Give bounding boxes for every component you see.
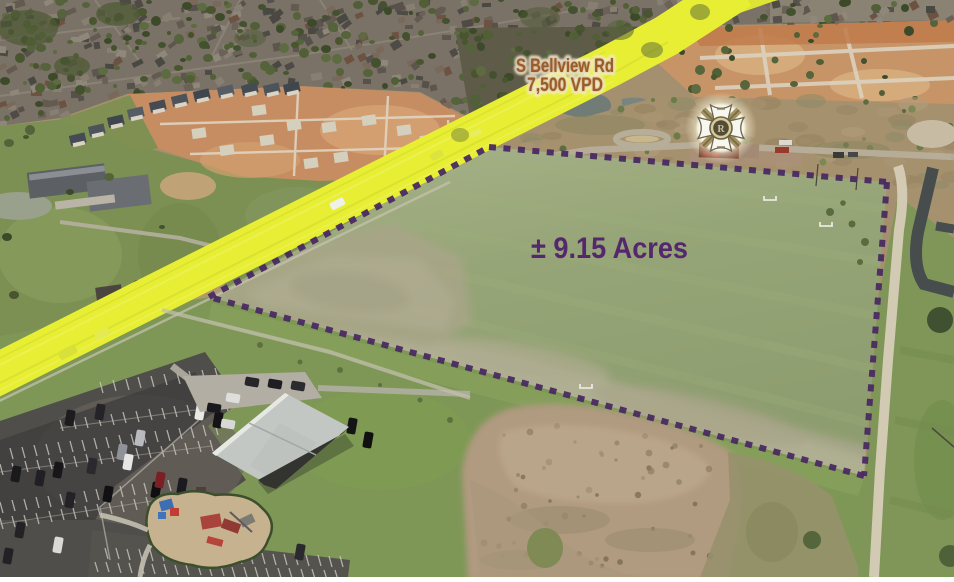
svg-text:± 9.15 Acres: ± 9.15 Acres [531,232,688,265]
svg-text:7,500 VPD: 7,500 VPD [527,75,603,96]
svg-text:R: R [717,124,725,135]
svg-text:S Bellview Rd: S Bellview Rd [516,56,614,77]
